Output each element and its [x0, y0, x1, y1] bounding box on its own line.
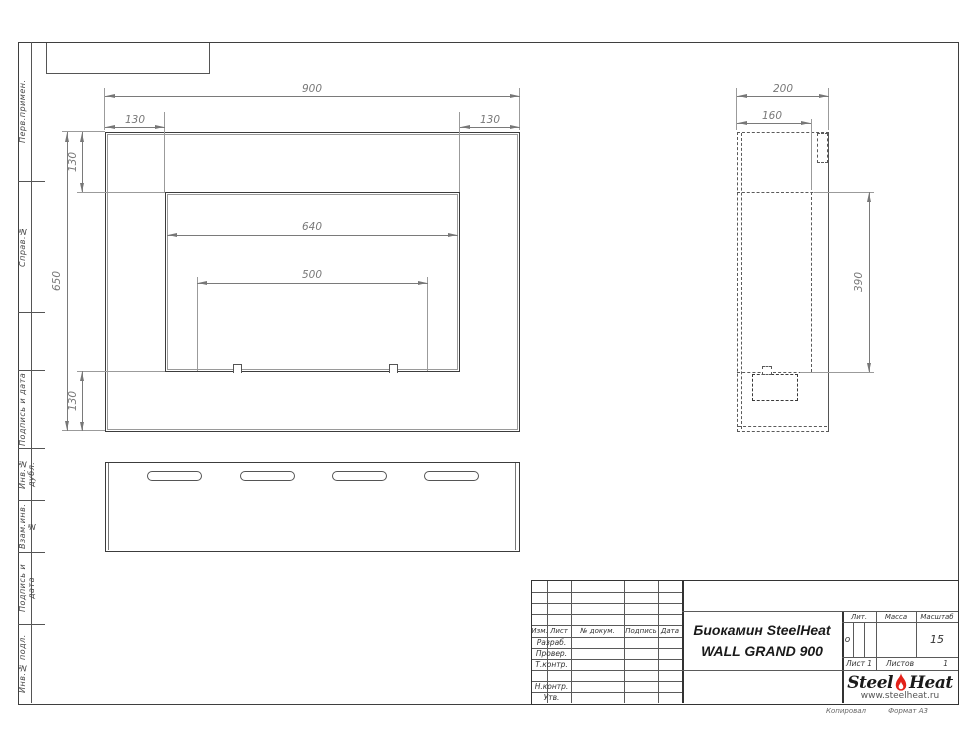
- tb-role-blank: [532, 670, 571, 681]
- steelheat-logo: Steel Heat www.steelheat.ru: [842, 670, 958, 703]
- tb-role-utv: Утв.: [532, 692, 571, 703]
- drawing-sheet: Перв.примен. Справ.№ Подпись и дата Инв.…: [0, 0, 970, 749]
- tb-sheet-label: Лист: [846, 659, 865, 668]
- vent-slot-3: [332, 471, 387, 481]
- tb-col-doc: № докум.: [571, 625, 624, 637]
- burner-tab-right: [389, 364, 398, 373]
- side-burner-box: [752, 374, 798, 401]
- strip-label-sprav-no: Справ.№: [18, 181, 30, 312]
- tb-lit-value: о: [842, 622, 853, 657]
- burner-tab-left: [233, 364, 242, 373]
- strip-label-vzam-inv: Взам.инв.№: [18, 500, 30, 552]
- flame-icon: [894, 673, 908, 692]
- tb-lit-label: Лит.: [842, 611, 876, 622]
- left-margin-strip: Перв.примен. Справ.№ Подпись и дата Инв.…: [18, 42, 45, 703]
- side-burner-knob: [762, 366, 772, 375]
- tb-role-nkontr: Н.контр.: [532, 681, 571, 692]
- tb-col-list: Лист: [547, 625, 571, 637]
- vent-slot-4: [424, 471, 479, 481]
- side-top-notch: [817, 133, 828, 163]
- logo-text-steel: Steel: [847, 673, 893, 693]
- tb-sheets-value: 1: [943, 659, 948, 668]
- tb-col-sign: Подпись: [624, 625, 658, 637]
- title-block: Изм. Лист № докум. Подпись Дата Разраб. …: [531, 580, 959, 705]
- product-title: Биокамин SteelHeat WALL GRAND 900: [682, 611, 842, 670]
- strip-label-inv-podl: Инв.№ подл.: [18, 624, 30, 703]
- product-title-line1: Биокамин SteelHeat: [693, 620, 830, 640]
- tb-mass-value: [876, 622, 916, 657]
- logo-url: www.steelheat.ru: [861, 691, 939, 701]
- side-inner-depth-line: [811, 192, 812, 372]
- product-title-line2: WALL GRAND 900: [701, 641, 823, 661]
- logo-text-heat: Heat: [909, 673, 953, 693]
- tb-role-tkontr: Т.контр.: [532, 659, 571, 670]
- tb-scale-value: 15: [916, 622, 958, 657]
- footer-format: Формат А3: [888, 707, 928, 715]
- vent-slot-1: [147, 471, 202, 481]
- tb-scale-label: Масштаб: [916, 611, 958, 622]
- tb-sheets-label: Листов: [886, 659, 914, 668]
- tb-sheet-cell: Лист 1: [842, 657, 876, 670]
- tb-col-date: Дата: [658, 625, 682, 637]
- tb-role-prover: Провер.: [532, 648, 571, 659]
- footer-copied: Копировал: [826, 707, 866, 715]
- strip-label-inv-dubl: Инв.№ дубл.: [18, 448, 30, 500]
- tb-sheets-cell: Листов 1: [876, 657, 958, 670]
- strip-label-podpis-data-1: Подпись и дата: [18, 370, 30, 448]
- strip-label-podpis-data-2: Подпись и дата: [18, 552, 30, 624]
- tb-sheet-value: 1: [867, 659, 872, 668]
- front-opening-rect: [165, 192, 460, 372]
- tb-col-izm: Изм.: [532, 625, 547, 637]
- tb-role-razrab: Разраб.: [532, 637, 571, 648]
- tb-mass-label: Масса: [876, 611, 916, 622]
- strip-label-perv-primen: Перв.примен.: [18, 42, 30, 181]
- top-left-stamp: [46, 43, 210, 74]
- vent-slot-2: [240, 471, 295, 481]
